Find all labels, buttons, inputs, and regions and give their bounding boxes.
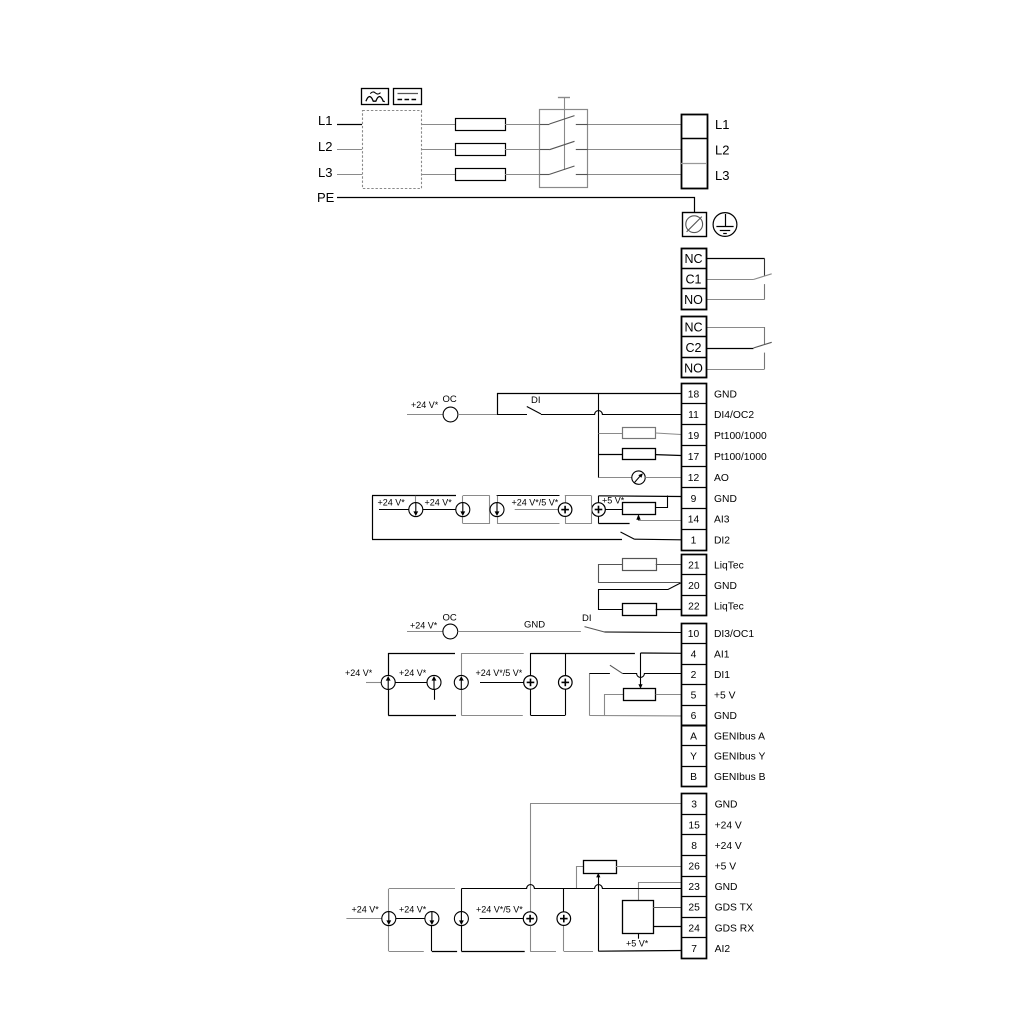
svg-text:A: A [690, 731, 697, 742]
svg-text:14: 14 [688, 515, 700, 526]
svg-text:GND: GND [714, 494, 737, 505]
svg-text:6: 6 [691, 711, 697, 722]
svg-text:AO: AO [714, 473, 729, 484]
svg-text:17: 17 [688, 452, 700, 463]
svg-text:+24 V*: +24 V* [410, 621, 438, 631]
svg-text:7: 7 [691, 944, 697, 955]
svg-text:L1: L1 [318, 113, 332, 128]
svg-text:25: 25 [688, 903, 700, 914]
svg-text:2: 2 [691, 670, 697, 681]
svg-text:DI4/OC2: DI4/OC2 [714, 410, 754, 421]
svg-text:GENIbus Y: GENIbus Y [714, 752, 765, 763]
svg-text:NC: NC [684, 321, 702, 335]
svg-text:L2: L2 [715, 143, 729, 158]
svg-text:23: 23 [688, 882, 700, 893]
svg-text:+5 V: +5 V [715, 862, 737, 873]
svg-text:AI2: AI2 [715, 944, 731, 955]
svg-text:NO: NO [684, 362, 703, 376]
svg-text:GND: GND [714, 711, 737, 722]
svg-text:GND: GND [524, 620, 545, 631]
svg-text:GND: GND [715, 882, 738, 893]
svg-text:OC: OC [443, 613, 457, 624]
svg-text:8: 8 [691, 841, 697, 852]
svg-text:+24 V: +24 V [715, 841, 742, 852]
svg-text:OC: OC [443, 394, 457, 405]
svg-text:+24 V*/5 V*: +24 V*/5 V* [476, 905, 523, 915]
svg-text:GDS TX: GDS TX [715, 903, 753, 914]
svg-text:NO: NO [684, 293, 703, 307]
svg-text:GND: GND [714, 389, 737, 400]
svg-text:GND: GND [715, 800, 738, 811]
svg-text:21: 21 [688, 561, 700, 572]
svg-text:+24 V*: +24 V* [352, 905, 380, 915]
svg-text:4: 4 [691, 650, 697, 661]
svg-text:Pt100/1000: Pt100/1000 [714, 452, 767, 463]
svg-text:+24 V*: +24 V* [345, 668, 373, 678]
svg-text:24: 24 [688, 923, 700, 934]
svg-text:15: 15 [688, 820, 700, 831]
svg-text:+24 V: +24 V [715, 820, 742, 831]
svg-text:NC: NC [684, 252, 702, 266]
svg-text:22: 22 [688, 602, 700, 613]
svg-text:11: 11 [688, 410, 699, 421]
svg-text:DI: DI [531, 395, 541, 406]
svg-text:1: 1 [691, 536, 697, 547]
svg-text:L1: L1 [715, 117, 729, 132]
svg-text:DI: DI [582, 613, 592, 624]
svg-text:DI1: DI1 [714, 670, 730, 681]
svg-text:3: 3 [691, 800, 697, 811]
svg-text:DI3/OC1: DI3/OC1 [714, 629, 754, 640]
svg-text:C2: C2 [686, 341, 702, 355]
svg-text:L3: L3 [318, 165, 332, 180]
svg-text:L2: L2 [318, 139, 332, 154]
svg-text:20: 20 [688, 581, 700, 592]
svg-text:LiqTec: LiqTec [714, 602, 744, 613]
svg-text:18: 18 [688, 389, 700, 400]
svg-text:AI1: AI1 [714, 650, 730, 661]
svg-text:LiqTec: LiqTec [714, 561, 744, 572]
svg-text:12: 12 [688, 473, 700, 484]
svg-text:+24 V*: +24 V* [411, 400, 439, 410]
svg-text:19: 19 [688, 431, 700, 442]
svg-text:GENIbus B: GENIbus B [714, 772, 766, 783]
svg-text:5: 5 [691, 691, 697, 702]
svg-text:GENIbus A: GENIbus A [714, 731, 765, 742]
svg-text:+24 V*: +24 V* [378, 498, 406, 508]
svg-text:+24 V*/5 V*: +24 V*/5 V* [512, 498, 559, 508]
svg-text:+5 V*: +5 V* [602, 496, 625, 506]
svg-text:+5 V*: +5 V* [626, 939, 649, 949]
svg-text:+5 V: +5 V [714, 691, 736, 702]
svg-text:AI3: AI3 [714, 515, 730, 526]
svg-text:+24 V*/5 V*: +24 V*/5 V* [476, 668, 523, 678]
svg-text:9: 9 [691, 494, 697, 505]
svg-text:B: B [690, 772, 697, 783]
svg-text:Pt100/1000: Pt100/1000 [714, 431, 767, 442]
svg-text:GND: GND [714, 581, 737, 592]
svg-text:PE: PE [317, 190, 335, 205]
svg-text:10: 10 [688, 629, 700, 640]
svg-text:+24 V*: +24 V* [425, 498, 453, 508]
svg-text:+24 V*: +24 V* [399, 905, 427, 915]
svg-text:L3: L3 [715, 168, 729, 183]
svg-text:Y: Y [690, 752, 697, 763]
svg-text:GDS RX: GDS RX [715, 923, 755, 934]
svg-text:DI2: DI2 [714, 536, 730, 547]
svg-text:26: 26 [688, 862, 700, 873]
svg-text:+24 V*: +24 V* [399, 668, 427, 678]
svg-text:C1: C1 [686, 273, 702, 287]
